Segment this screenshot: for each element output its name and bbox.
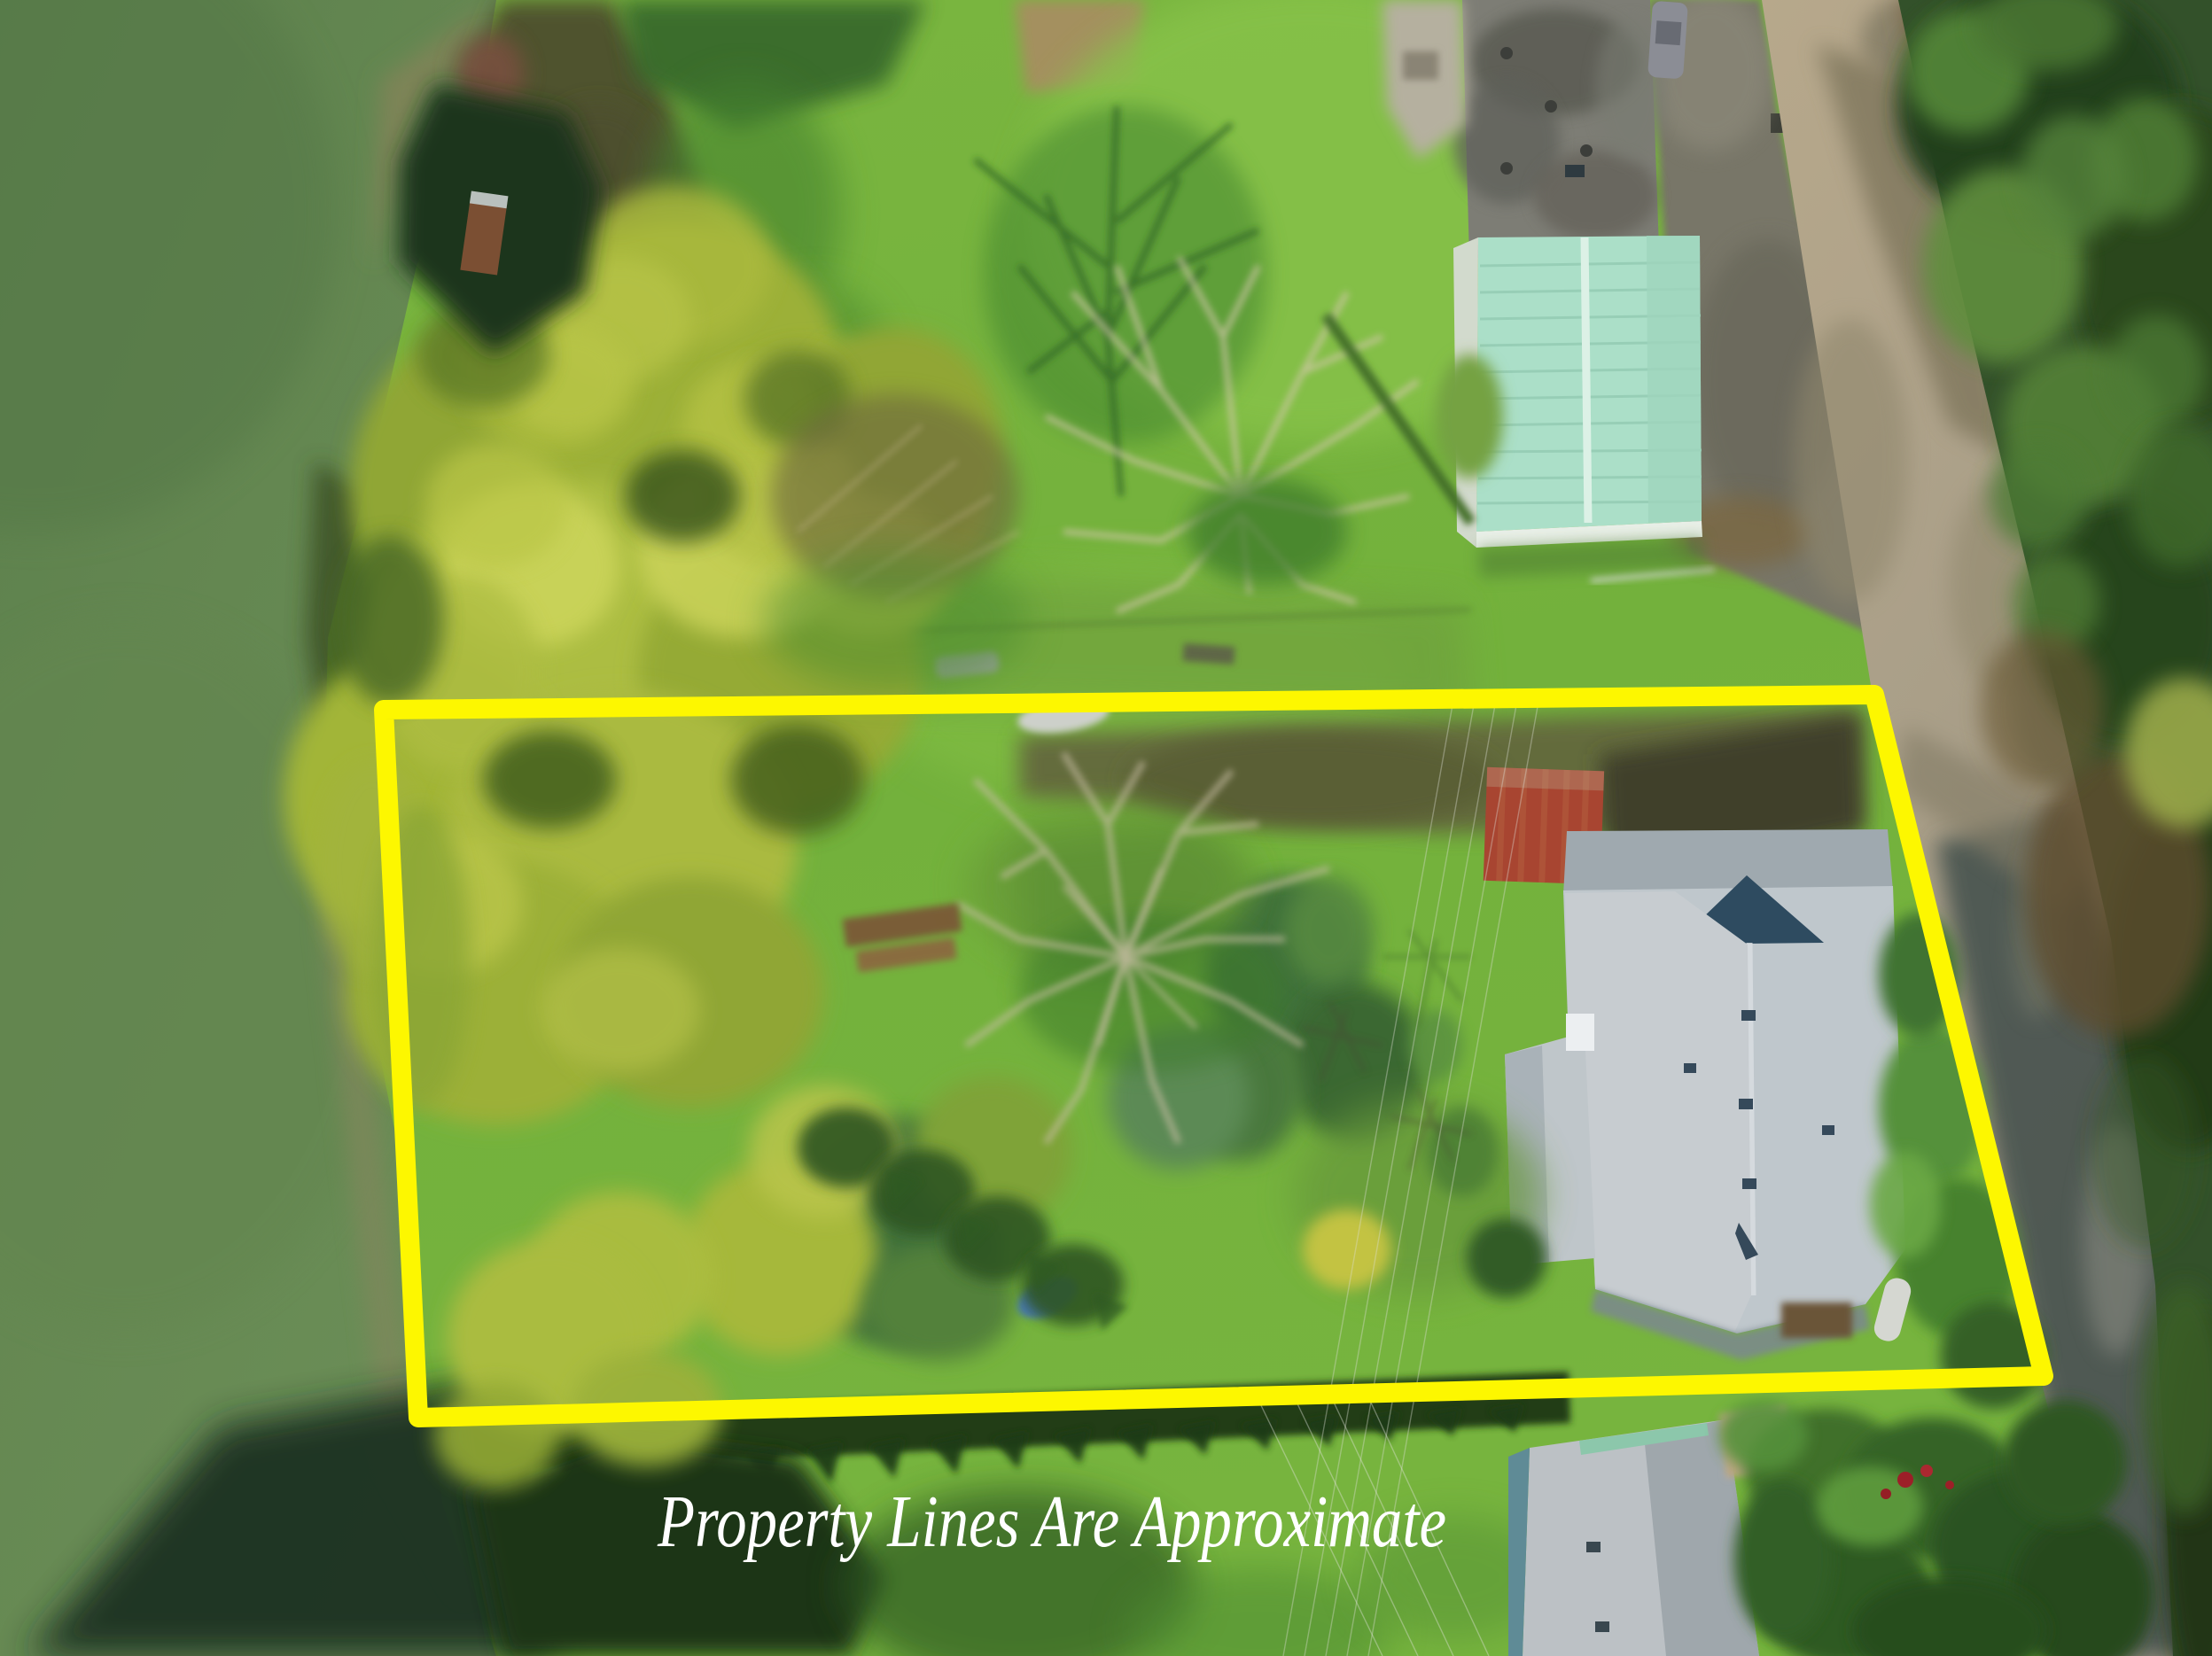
svg-text:Property Lines Are Approximate: Property Lines Are Approximate (657, 1481, 1446, 1563)
